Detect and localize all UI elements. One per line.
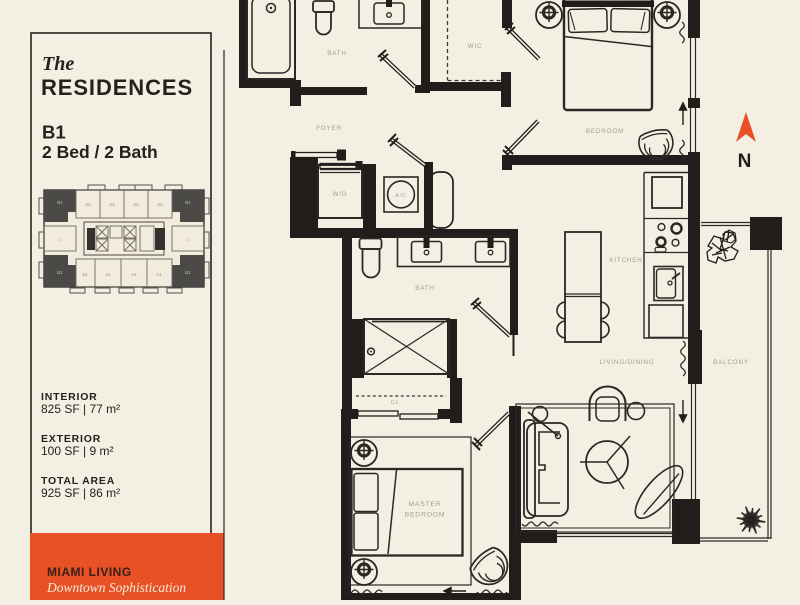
svg-text:RESIDENCES: RESIDENCES (41, 75, 193, 100)
svg-text:B1: B1 (57, 270, 63, 275)
svg-text:W/D: W/D (333, 191, 348, 198)
svg-text:A1: A1 (105, 272, 111, 277)
svg-text:S2: S2 (57, 237, 63, 242)
svg-text:BATH: BATH (415, 285, 435, 292)
svg-text:2 Bed / 2 Bath: 2 Bed / 2 Bath (42, 142, 158, 162)
svg-text:S1: S1 (82, 272, 88, 277)
svg-text:BALCONY: BALCONY (713, 359, 749, 366)
svg-text:LIVING/DINING: LIVING/DINING (600, 359, 655, 366)
svg-text:BATH: BATH (327, 50, 347, 57)
svg-text:CL: CL (391, 400, 400, 406)
svg-text:Downtown Sophistication: Downtown Sophistication (46, 580, 186, 595)
svg-text:B1: B1 (57, 200, 63, 205)
svg-text:N: N (738, 151, 752, 172)
svg-text:KITCHEN: KITCHEN (609, 257, 642, 264)
svg-text:The: The (42, 53, 74, 75)
svg-text:A1: A1 (131, 272, 137, 277)
svg-text:B1: B1 (185, 270, 191, 275)
svg-text:B1: B1 (42, 122, 66, 143)
svg-text:A2: A2 (157, 202, 163, 207)
svg-text:BEDROOM: BEDROOM (586, 128, 624, 135)
svg-text:MIAMI LIVING: MIAMI LIVING (47, 565, 132, 579)
svg-text:A1: A1 (156, 272, 162, 277)
svg-text:A3: A3 (109, 202, 115, 207)
svg-text:S2: S2 (185, 237, 191, 242)
svg-text:A/C: A/C (395, 193, 406, 199)
svg-text:MASTER: MASTER (408, 501, 441, 508)
svg-text:925 SF | 86 m²: 925 SF | 86 m² (41, 486, 120, 500)
svg-text:A2: A2 (85, 202, 91, 207)
svg-text:FOYER: FOYER (316, 125, 342, 132)
svg-text:BEDROOM: BEDROOM (405, 512, 446, 519)
svg-text:A2: A2 (133, 202, 139, 207)
svg-text:WIC: WIC (468, 43, 483, 50)
svg-text:100 SF | 9 m²: 100 SF | 9 m² (41, 444, 113, 458)
svg-text:825 SF | 77 m²: 825 SF | 77 m² (41, 402, 120, 416)
svg-text:B1: B1 (185, 200, 191, 205)
